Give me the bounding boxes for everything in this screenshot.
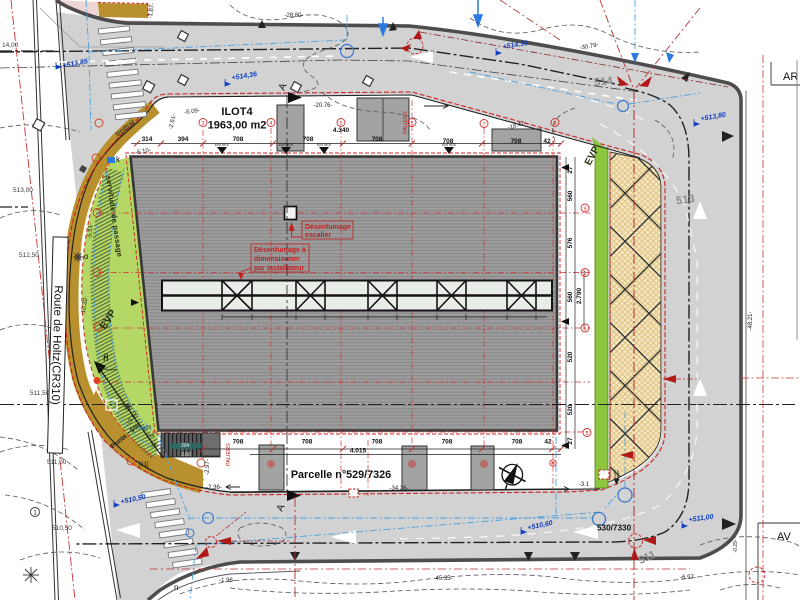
svg-text:513: 513 xyxy=(676,193,696,207)
svg-text:708: 708 xyxy=(442,439,453,446)
svg-text:3.60: 3.60 xyxy=(181,452,191,458)
svg-text:511,00: 511,00 xyxy=(47,459,67,466)
svg-text:1963,00 m2: 1963,00 m2 xyxy=(208,120,267,132)
svg-text:-34.26-: -34.26- xyxy=(389,486,408,492)
svg-text:-48.21-: -48.21- xyxy=(748,311,754,330)
svg-text:-28.80-: -28.80- xyxy=(284,13,303,19)
svg-text:-6.97-: -6.97- xyxy=(680,575,696,581)
svg-text:-0.29-: -0.29- xyxy=(733,539,739,552)
svg-text:708: 708 xyxy=(302,439,313,446)
svg-text:escalier: escalier xyxy=(305,232,331,239)
svg-text:-20.76-: -20.76- xyxy=(313,103,332,109)
svg-text:ENTREE: ENTREE xyxy=(442,143,457,147)
svg-text:9: 9 xyxy=(583,207,586,213)
svg-text:708: 708 xyxy=(233,439,244,446)
svg-text:6: 6 xyxy=(583,327,586,333)
svg-text:520: 520 xyxy=(567,404,574,415)
svg-text:ILOT4: ILOT4 xyxy=(221,106,253,118)
svg-text:o: o xyxy=(84,252,89,261)
svg-text:4.015: 4.015 xyxy=(350,448,367,455)
svg-text:314: 314 xyxy=(142,136,153,143)
svg-text:-3.1: -3.1 xyxy=(579,482,590,488)
svg-text:Désenfumage à: Désenfumage à xyxy=(254,247,306,254)
svg-text:ENTREE: ENTREE xyxy=(215,143,230,147)
svg-text:512,50: 512,50 xyxy=(19,252,39,259)
svg-text:394: 394 xyxy=(181,443,190,449)
svg-text:4: 4 xyxy=(269,121,272,127)
svg-text:ENTREE: ENTREE xyxy=(279,143,294,147)
svg-text:PALIERS: PALIERS xyxy=(226,443,232,466)
svg-text:513,00: 513,00 xyxy=(13,187,33,194)
svg-text:708: 708 xyxy=(512,439,523,446)
svg-text:708: 708 xyxy=(303,136,314,143)
svg-text:394: 394 xyxy=(178,136,189,143)
svg-text:560: 560 xyxy=(567,291,574,302)
svg-text:n: n xyxy=(104,351,108,360)
svg-text:par installateur: par installateur xyxy=(254,265,304,272)
svg-text:708: 708 xyxy=(511,138,522,145)
svg-text:Parcelle n°529/7326: Parcelle n°529/7326 xyxy=(291,469,391,481)
svg-text:708: 708 xyxy=(372,439,383,446)
svg-text:520: 520 xyxy=(567,351,574,362)
svg-text:Désenfumage: Désenfumage xyxy=(305,224,351,231)
svg-text:[11]: [11] xyxy=(139,462,149,468)
svg-text:42: 42 xyxy=(544,439,552,446)
svg-text:514: 514 xyxy=(594,75,615,89)
svg-text:14,00: 14,00 xyxy=(2,42,19,49)
svg-text:8: 8 xyxy=(553,121,556,127)
svg-text:PALIERS: PALIERS xyxy=(403,111,409,134)
svg-text:3: 3 xyxy=(585,431,588,437)
svg-text:AR: AR xyxy=(783,71,798,83)
svg-text:530/7330: 530/7330 xyxy=(597,524,632,533)
svg-text:-1.96-: -1.96- xyxy=(219,578,235,584)
svg-text:n: n xyxy=(174,583,178,592)
svg-text:6: 6 xyxy=(410,121,413,127)
svg-text:576: 576 xyxy=(567,237,574,248)
svg-text:7: 7 xyxy=(482,122,485,128)
svg-text:708: 708 xyxy=(372,136,383,143)
svg-text:-2.36-: -2.36- xyxy=(206,485,222,491)
svg-text:AV: AV xyxy=(777,531,792,543)
svg-text:2.790: 2.790 xyxy=(576,287,583,304)
svg-text:5: 5 xyxy=(339,121,342,127)
svg-text:dimensionner: dimensionner xyxy=(254,256,300,263)
svg-text:-2.97-: -2.97- xyxy=(205,459,211,475)
svg-text:ENTREE: ENTREE xyxy=(317,143,332,147)
svg-text:-45.35-: -45.35- xyxy=(433,576,452,582)
svg-text:2: 2 xyxy=(201,121,204,127)
svg-text:510,50: 510,50 xyxy=(52,525,72,532)
svg-text:42: 42 xyxy=(543,138,551,145)
svg-text:560: 560 xyxy=(567,190,574,201)
svg-text:4.340: 4.340 xyxy=(333,127,350,134)
svg-text:708: 708 xyxy=(233,136,244,143)
svg-text:511,50: 511,50 xyxy=(30,390,50,397)
svg-text:-5.51-: -5.51- xyxy=(87,223,94,239)
svg-text:1: 1 xyxy=(583,271,586,277)
